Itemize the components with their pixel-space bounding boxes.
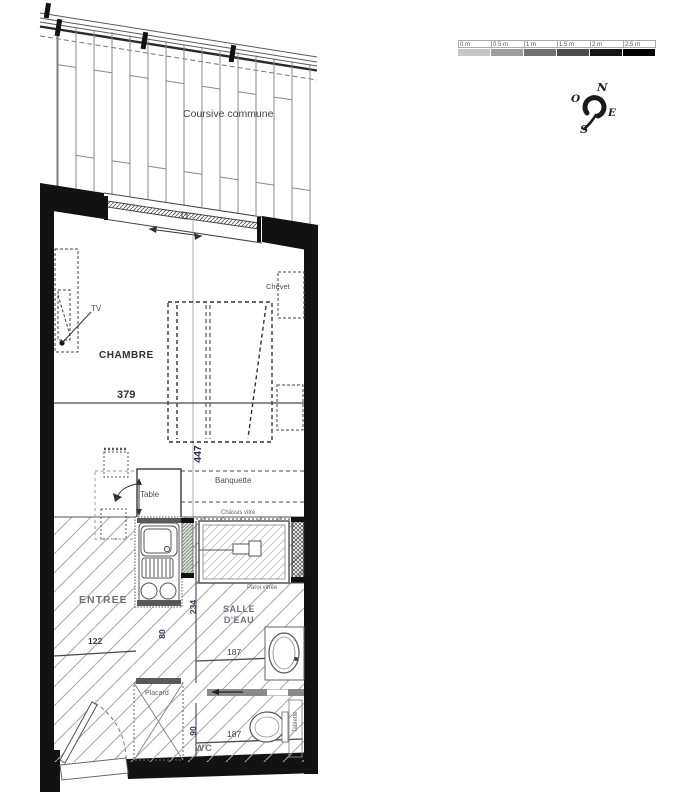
- room-label-entree: ENTREE: [79, 595, 128, 606]
- table-label: Table: [140, 491, 159, 499]
- scale-bar-swatch: [458, 49, 490, 56]
- compass-west-label: O: [571, 93, 580, 105]
- dim-187-sde: 187: [227, 648, 241, 657]
- dim-447: 447: [193, 445, 204, 463]
- floorplan-drawing: [0, 0, 687, 800]
- scale-tick-label: 2 m: [590, 40, 623, 48]
- scale-bar-segment: 1.5 m: [557, 40, 590, 56]
- scale-bar-segment: 2 m: [590, 40, 623, 56]
- scale-bar-swatch: [557, 49, 589, 56]
- compass-north-label: N: [597, 80, 608, 94]
- compass-south-label: S: [580, 122, 588, 136]
- shower-mixer: [233, 544, 250, 554]
- chassis-vitre-label: Châssis vitré: [221, 510, 255, 516]
- room-label-chambre: CHAMBRE: [99, 351, 154, 361]
- towel-rail: [207, 689, 304, 696]
- tablette-label: Tablette: [293, 711, 299, 732]
- dim-122: 122: [88, 637, 102, 646]
- scale-bar-swatch: [524, 49, 556, 56]
- scale-bar-swatch: [590, 49, 622, 56]
- scale-bar-swatch: [623, 49, 655, 56]
- shower: [199, 521, 289, 583]
- scale-bar-segment: 0.5 m: [491, 40, 524, 56]
- scale-tick-label: 0 m: [458, 40, 491, 48]
- bed: [168, 302, 272, 442]
- dim-379: 379: [117, 390, 135, 401]
- dim-90: 90: [189, 726, 198, 735]
- coursive-label: Coursive commune: [183, 109, 273, 120]
- scale-tick-label: 1 m: [524, 40, 557, 48]
- room-label-salle-deau-1: SALLE: [218, 605, 260, 614]
- tv-label: TV: [91, 305, 101, 313]
- basin-tap-icon: [294, 657, 298, 661]
- chevet-label: Chevet: [266, 283, 290, 291]
- washbasin: [265, 627, 304, 680]
- dim-187-wc: 187: [227, 730, 241, 739]
- floor-plan-canvas: Coursive commune TV CHAMBRE Chevet 379 4…: [0, 0, 687, 800]
- kitchenette: [135, 517, 182, 607]
- dim-80: 80: [158, 629, 167, 638]
- compass-east-label: E: [608, 107, 616, 119]
- scale-tick-label: 1.5 m: [557, 40, 590, 48]
- room-label-wc: WC: [195, 744, 213, 754]
- scale-bar-segment: 1 m: [524, 40, 557, 56]
- placard-label: Placard: [145, 690, 169, 697]
- room-label-salle-deau-2: D'EAU: [218, 616, 260, 625]
- scale-bar-swatch: [491, 49, 523, 56]
- banquette-label: Banquette: [215, 477, 251, 485]
- chevet-nightstands: [277, 272, 304, 430]
- dim-234: 234: [189, 600, 198, 614]
- paroi-vitree-label: Paroi vitrée: [247, 585, 277, 591]
- right-duct: [291, 517, 305, 583]
- scale-bar: 0 m 0.5 m 1 m 1.5 m 2 m 2.5 m: [458, 40, 656, 56]
- tv-unit: [55, 249, 78, 352]
- scale-bar-segment: 2.5 m: [623, 40, 656, 56]
- scale-tick-label: 0.5 m: [491, 40, 524, 48]
- scale-bar-segment: 0 m: [458, 40, 491, 56]
- kitchen-duct: [181, 518, 194, 578]
- scale-tick-label: 2.5 m: [623, 40, 656, 48]
